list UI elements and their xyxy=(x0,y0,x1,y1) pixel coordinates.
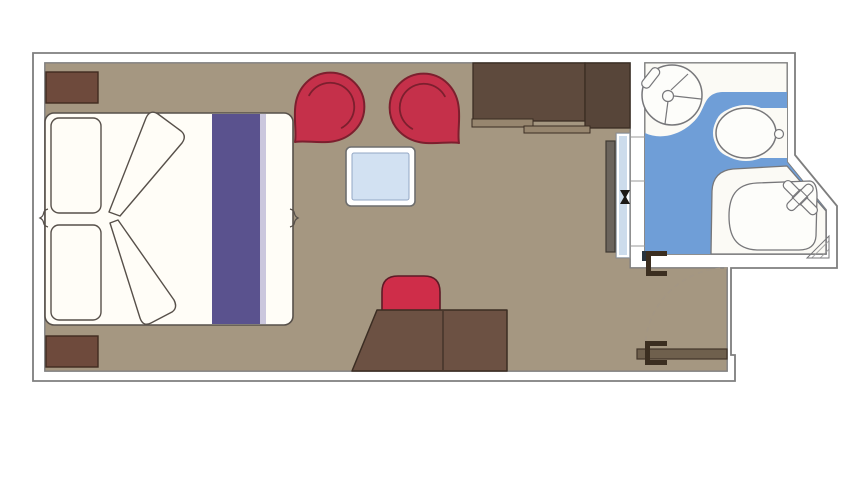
bed-runner xyxy=(212,114,260,324)
door-leaf xyxy=(637,349,727,359)
closet-slab xyxy=(606,141,615,252)
coffee-table xyxy=(346,147,415,206)
pillow-left xyxy=(51,118,101,213)
floorplan-canvas xyxy=(0,0,865,482)
desk-chair xyxy=(382,276,440,312)
bed-runner-edge xyxy=(260,114,266,324)
mirror-closet-unit xyxy=(606,133,630,258)
wardrobe-rail-right xyxy=(524,126,590,133)
double-bed xyxy=(40,112,298,325)
nightstand-top xyxy=(46,72,98,103)
pillow-right xyxy=(51,225,101,320)
nightstand-bottom xyxy=(46,336,98,367)
cabin-floorplan xyxy=(0,0,865,482)
desk xyxy=(352,310,507,371)
